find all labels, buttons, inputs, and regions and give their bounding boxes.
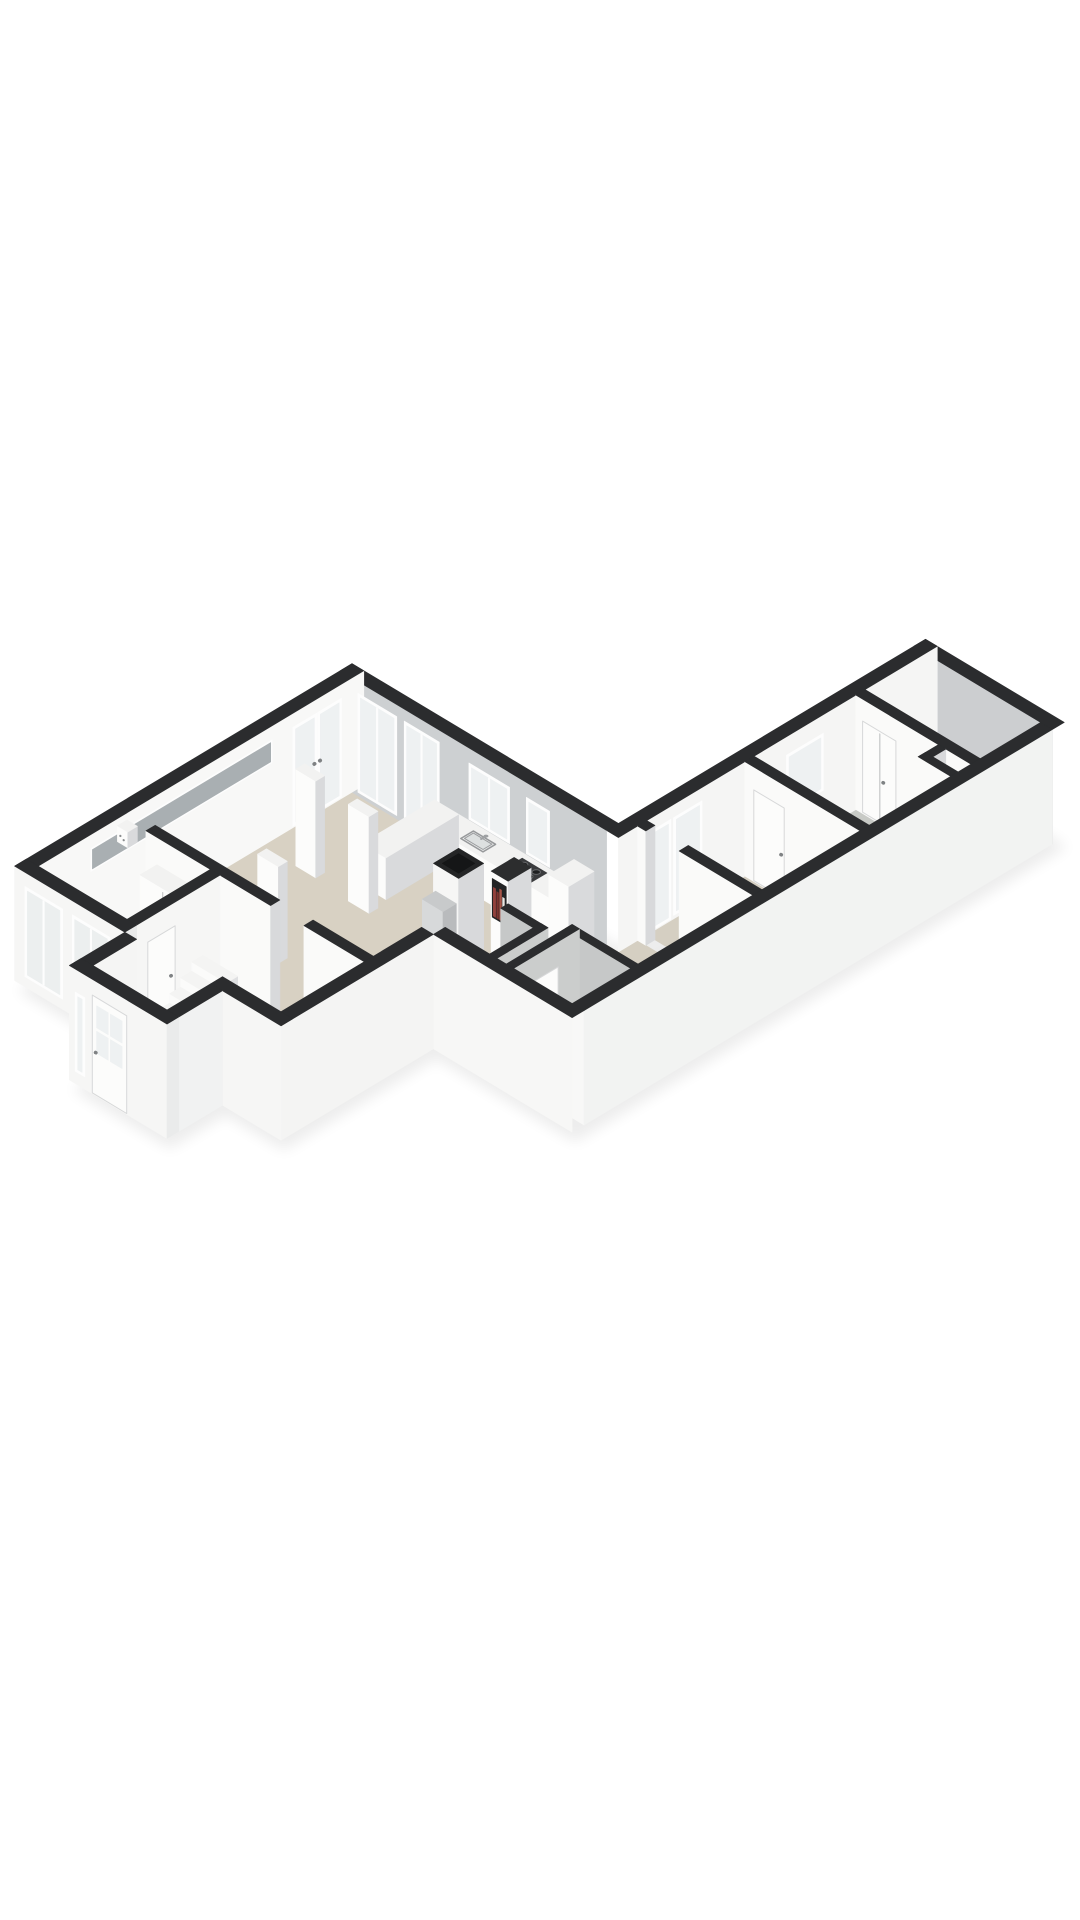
burner-2 — [532, 870, 540, 875]
floorplan-page — [0, 0, 1080, 1920]
standing-panel-1 — [296, 764, 325, 878]
boiler-box — [117, 820, 137, 848]
front-sidelight-window — [75, 992, 85, 1077]
partition-bedroom1-a — [638, 821, 655, 946]
standing-panel-2 — [348, 799, 378, 914]
shelf-book-1 — [493, 887, 495, 917]
floorplan-3d-render — [0, 0, 1080, 1920]
front-door — [92, 995, 126, 1113]
shelf-book-2 — [497, 892, 499, 920]
